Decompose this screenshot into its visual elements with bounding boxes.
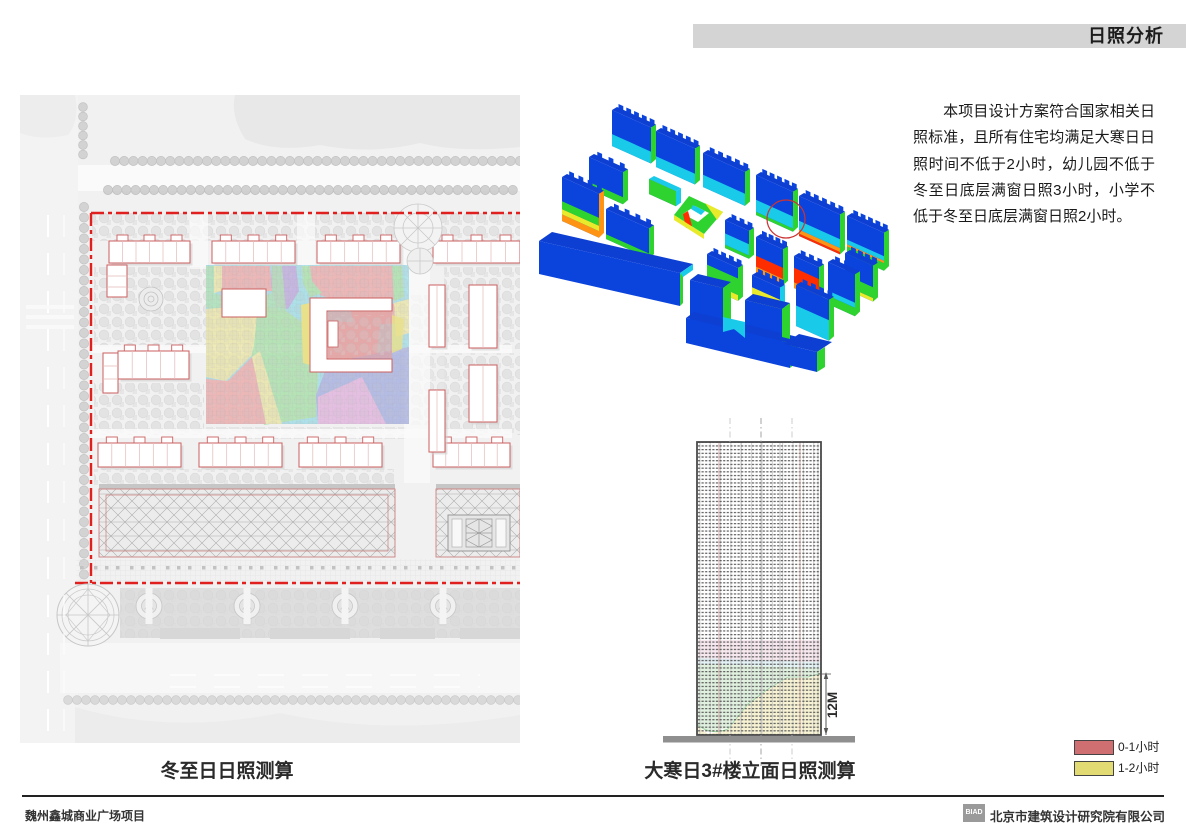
svg-text:12M: 12M [825,692,840,718]
